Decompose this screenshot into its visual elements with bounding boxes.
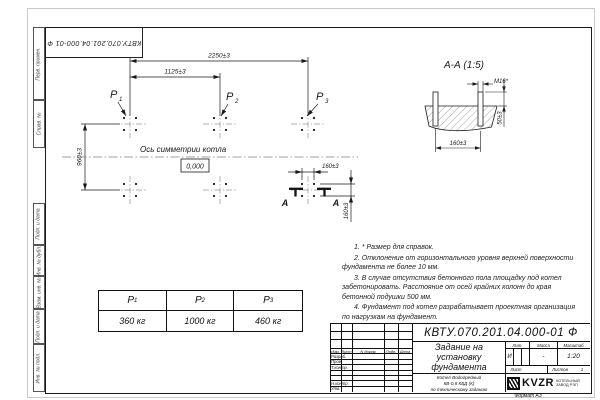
section-dim-height: 50±3 (498, 111, 504, 125)
load-point-2: P (226, 91, 234, 103)
row-prov: Пров. (331, 359, 342, 364)
sheets-value: 1 (576, 366, 588, 372)
lit-value: И (506, 349, 513, 364)
drawing-sheet: КВТУ.070.201.04.000-01 Ф Перв. примен. С… (0, 0, 600, 400)
drawing-title-line1: Задание на (413, 342, 505, 352)
col-data: Дата (398, 349, 412, 354)
load-value-p3: 460 кг (234, 311, 302, 331)
section-letter-left: А (281, 198, 289, 208)
note-4: 4. Фундамент под котел разрабатывает про… (342, 303, 584, 322)
manufacturer-logo: KVZR КОТЕЛЬНЫЙ ЗАВОД РЭП (507, 375, 589, 391)
logo-text: KVZR (522, 377, 554, 389)
axis-label: Ось симметрии котла (140, 145, 227, 154)
row-tkontr: Т.контр. (331, 365, 348, 370)
dim-bolt-h-label: 160±3 (322, 164, 339, 170)
section-dim-spacing: 160±3 (450, 141, 467, 147)
drawing-title-line2: установку (413, 352, 505, 362)
note-2: 2. Отклонение от горизонтального уровня … (342, 254, 584, 273)
load-table-header-p2: P2 (167, 291, 235, 311)
row-utv: Утв. (331, 386, 341, 391)
dim-half-label: 1125±3 (164, 69, 186, 76)
product-line3: по техническому заданию (413, 386, 505, 392)
scale-value: 1:20 (558, 349, 589, 364)
dim-rows-label: 960±3 (77, 148, 84, 166)
note-3: 3. В случае отсутствия бетонного пола пл… (342, 274, 584, 303)
mass-header: Масса (530, 342, 557, 348)
col-ndoc: N докум. (353, 349, 384, 354)
sheets-label: Листов (548, 366, 572, 372)
note-1: 1. * Размер для справок. (342, 243, 584, 253)
col-list: Лист (341, 349, 352, 354)
svg-text:3: 3 (325, 99, 329, 105)
load-point-3: P (316, 91, 324, 103)
logo-caption: КОТЕЛЬНЫЙ ЗАВОД РЭП (556, 379, 580, 388)
drawing-title-line3: фундамента (413, 362, 505, 372)
level-mark: 0,000 (186, 164, 204, 171)
lit-header: Лит. (506, 342, 529, 348)
technical-notes: 1. * Размер для справок. 2. Отклонение о… (342, 243, 584, 323)
title-block-doc-number: КВТУ.070.201.04.000-01 Ф (413, 324, 589, 341)
scale-header: Масштаб (558, 342, 589, 348)
format-label: Формат А3 (505, 393, 551, 399)
load-point-1: P (110, 89, 118, 101)
kvzr-coil-icon (507, 377, 520, 390)
thread-label: М16* (494, 79, 509, 85)
dim-overall-label: 2250±3 (207, 53, 230, 60)
load-table: P1 P2 P3 360 кг 1000 кг 460 кг (98, 290, 303, 332)
load-table-header-p1: P1 (99, 291, 167, 311)
col-podp: Подп. (384, 349, 398, 354)
row-razrab: Разраб. (331, 354, 346, 359)
load-table-header-p3: P3 (234, 291, 302, 311)
plan-view (62, 57, 358, 222)
svg-text:1: 1 (119, 97, 122, 103)
dim-bolt-v-label: 160±3 (344, 202, 350, 219)
section-letter-right: А (332, 198, 340, 208)
svg-text:2: 2 (234, 99, 239, 105)
load-value-p1: 360 кг (99, 311, 167, 331)
mass-value: - (530, 349, 557, 364)
section-title: А-А (1:5) (443, 60, 484, 71)
col-izm: Изм. (330, 349, 341, 354)
sheet-label: Лист (506, 366, 526, 372)
row-nkontr: Н.контр. (331, 381, 349, 386)
load-value-p2: 1000 кг (167, 311, 235, 331)
